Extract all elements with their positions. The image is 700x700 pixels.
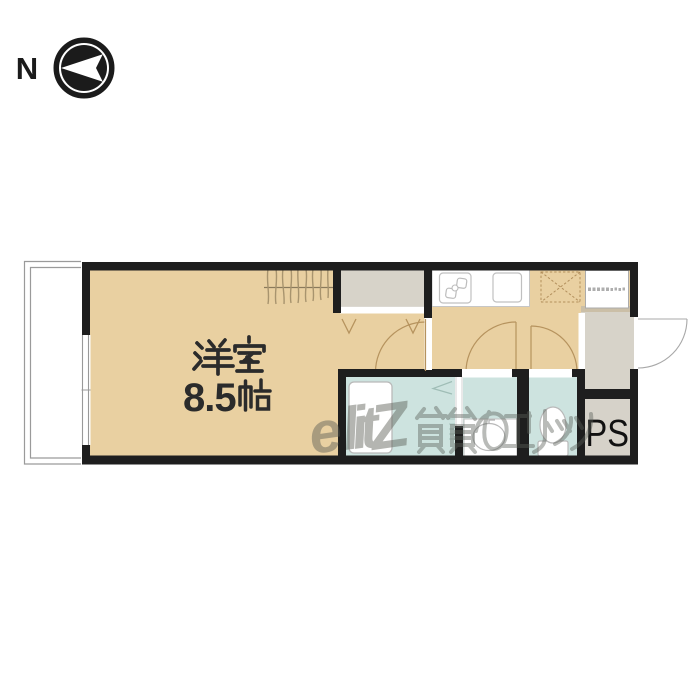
svg-text:8.5: 8.5	[183, 376, 236, 420]
svg-text:N: N	[16, 51, 38, 86]
